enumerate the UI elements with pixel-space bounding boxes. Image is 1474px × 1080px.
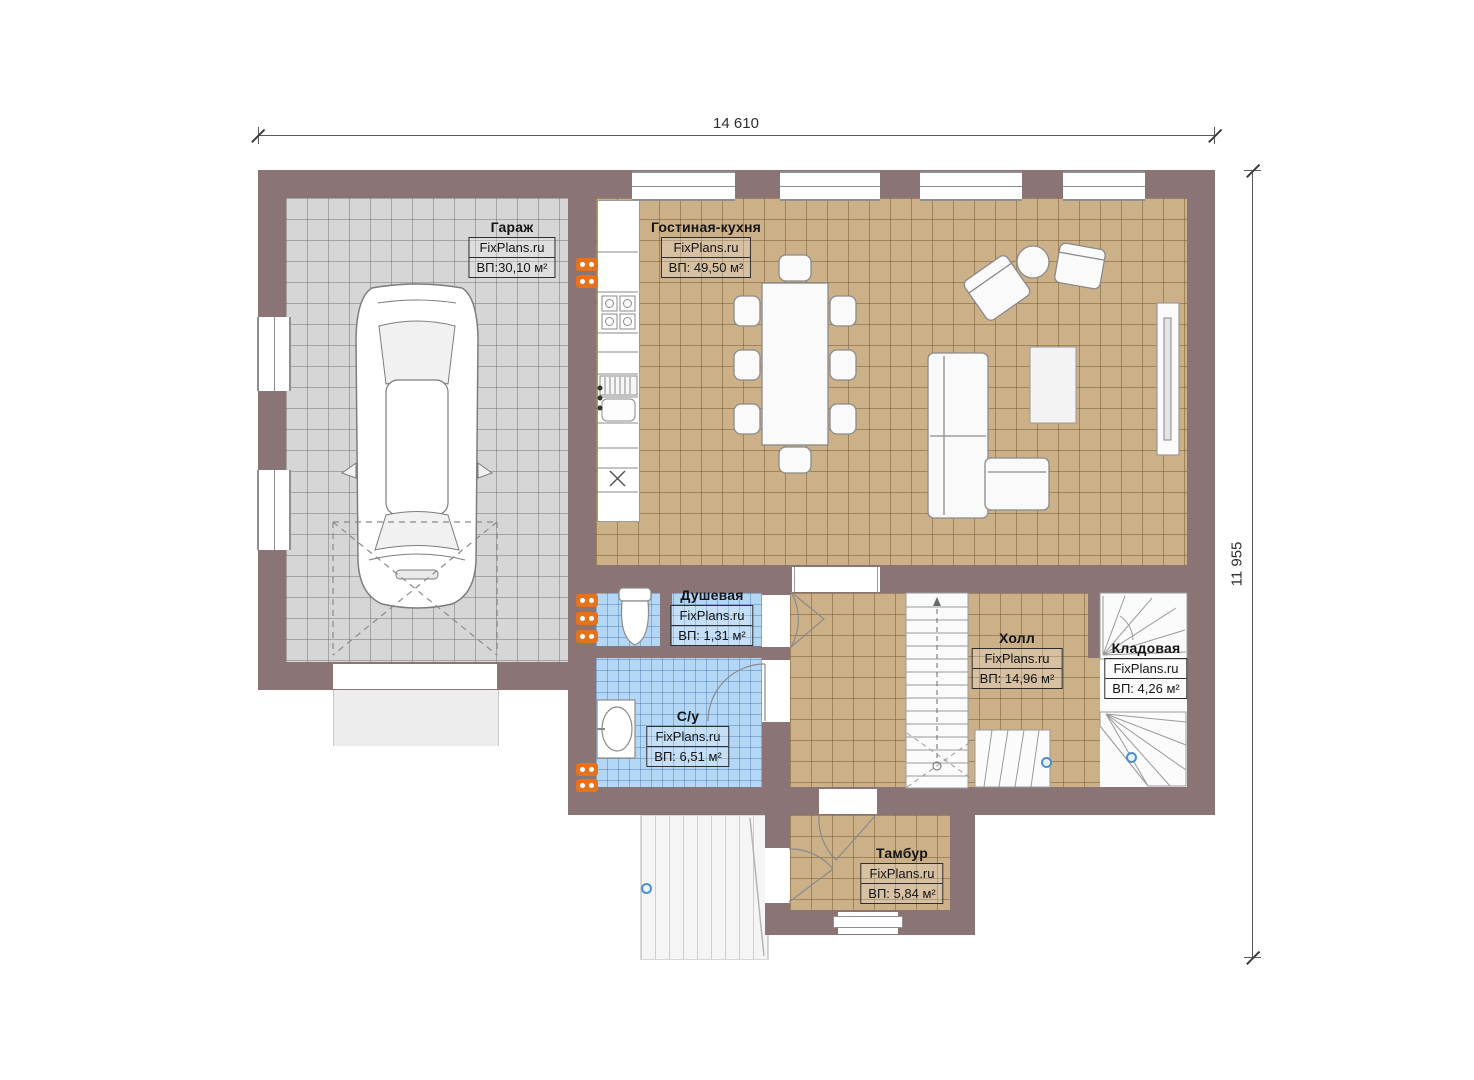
dining-set (734, 255, 856, 473)
room-info-box: FixPlans.ru ВП: 1,31 м² (670, 605, 753, 646)
room-site: FixPlans.ru (1105, 659, 1186, 678)
radiator (576, 612, 598, 625)
room-label-hall: Холл FixPlans.ru ВП: 14,96 м² (972, 630, 1063, 689)
radiator (576, 630, 598, 643)
room-area: ВП: 4,26 м² (1105, 678, 1186, 698)
room-label-living-kitchen: Гостиная-кухня FixPlans.ru ВП: 49,50 м² (651, 219, 761, 278)
radiator (576, 258, 598, 271)
radiator (576, 275, 598, 288)
toilet (619, 588, 651, 645)
room-info-box: FixPlans.ru ВП:30,10 м² (468, 237, 555, 278)
floor-plan-canvas: Гараж FixPlans.ru ВП:30,10 м² Гостиная-к… (0, 0, 1474, 1080)
marker-dot (1126, 752, 1137, 763)
room-info-box: FixPlans.ru ВП: 49,50 м² (661, 237, 752, 278)
room-area: ВП: 49,50 м² (662, 257, 751, 277)
room-label-vestibule: Тамбур FixPlans.ru ВП: 5,84 м² (860, 845, 943, 904)
room-site: FixPlans.ru (671, 606, 752, 625)
room-area: ВП:30,10 м² (469, 257, 554, 277)
room-label-wc: С/у FixPlans.ru ВП: 6,51 м² (646, 708, 729, 767)
room-site: FixPlans.ru (861, 864, 942, 883)
marker-dot (1041, 757, 1052, 768)
staircase-winder-bottom (1100, 712, 1186, 786)
room-site: FixPlans.ru (469, 238, 554, 257)
room-area: ВП: 5,84 м² (861, 883, 942, 903)
room-info-box: FixPlans.ru ВП: 5,84 м² (860, 863, 943, 904)
room-site: FixPlans.ru (662, 238, 751, 257)
side-table (1017, 246, 1049, 278)
room-area: ВП: 14,96 м² (973, 668, 1062, 688)
room-info-box: FixPlans.ru ВП: 6,51 м² (646, 726, 729, 767)
room-site: FixPlans.ru (973, 649, 1062, 668)
radiator (576, 779, 598, 792)
room-info-box: FixPlans.ru ВП: 14,96 м² (972, 648, 1063, 689)
room-label-shower: Душевая FixPlans.ru ВП: 1,31 м² (670, 587, 753, 646)
staircase-main-flight (906, 593, 983, 788)
washbasin (597, 700, 635, 758)
room-site: FixPlans.ru (647, 727, 728, 746)
room-area: ВП: 6,51 м² (647, 746, 728, 766)
room-name: Холл (972, 630, 1063, 646)
room-name: Гостиная-кухня (651, 219, 761, 235)
coffee-table (1030, 347, 1076, 423)
room-name: С/у (646, 708, 729, 724)
radiator (576, 763, 598, 776)
room-area: ВП: 1,31 м² (671, 625, 752, 645)
room-name: Гараж (468, 219, 555, 235)
armchairs (962, 242, 1106, 322)
radiator (576, 594, 598, 607)
tv-console (1157, 303, 1179, 455)
room-name: Кладовая (1104, 640, 1187, 656)
room-name: Душевая (670, 587, 753, 603)
room-label-garage: Гараж FixPlans.ru ВП:30,10 м² (468, 219, 555, 278)
room-label-storage: Кладовая FixPlans.ru ВП: 4,26 м² (1104, 640, 1187, 699)
car (342, 284, 492, 608)
marker-dot (641, 883, 652, 894)
staircase-lower-steps (975, 730, 1050, 787)
porch-edge (750, 818, 764, 956)
room-info-box: FixPlans.ru ВП: 4,26 м² (1104, 658, 1187, 699)
kitchen-appliances (597, 252, 638, 492)
furniture-overlay (0, 0, 1474, 1080)
room-name: Тамбур (860, 845, 943, 861)
